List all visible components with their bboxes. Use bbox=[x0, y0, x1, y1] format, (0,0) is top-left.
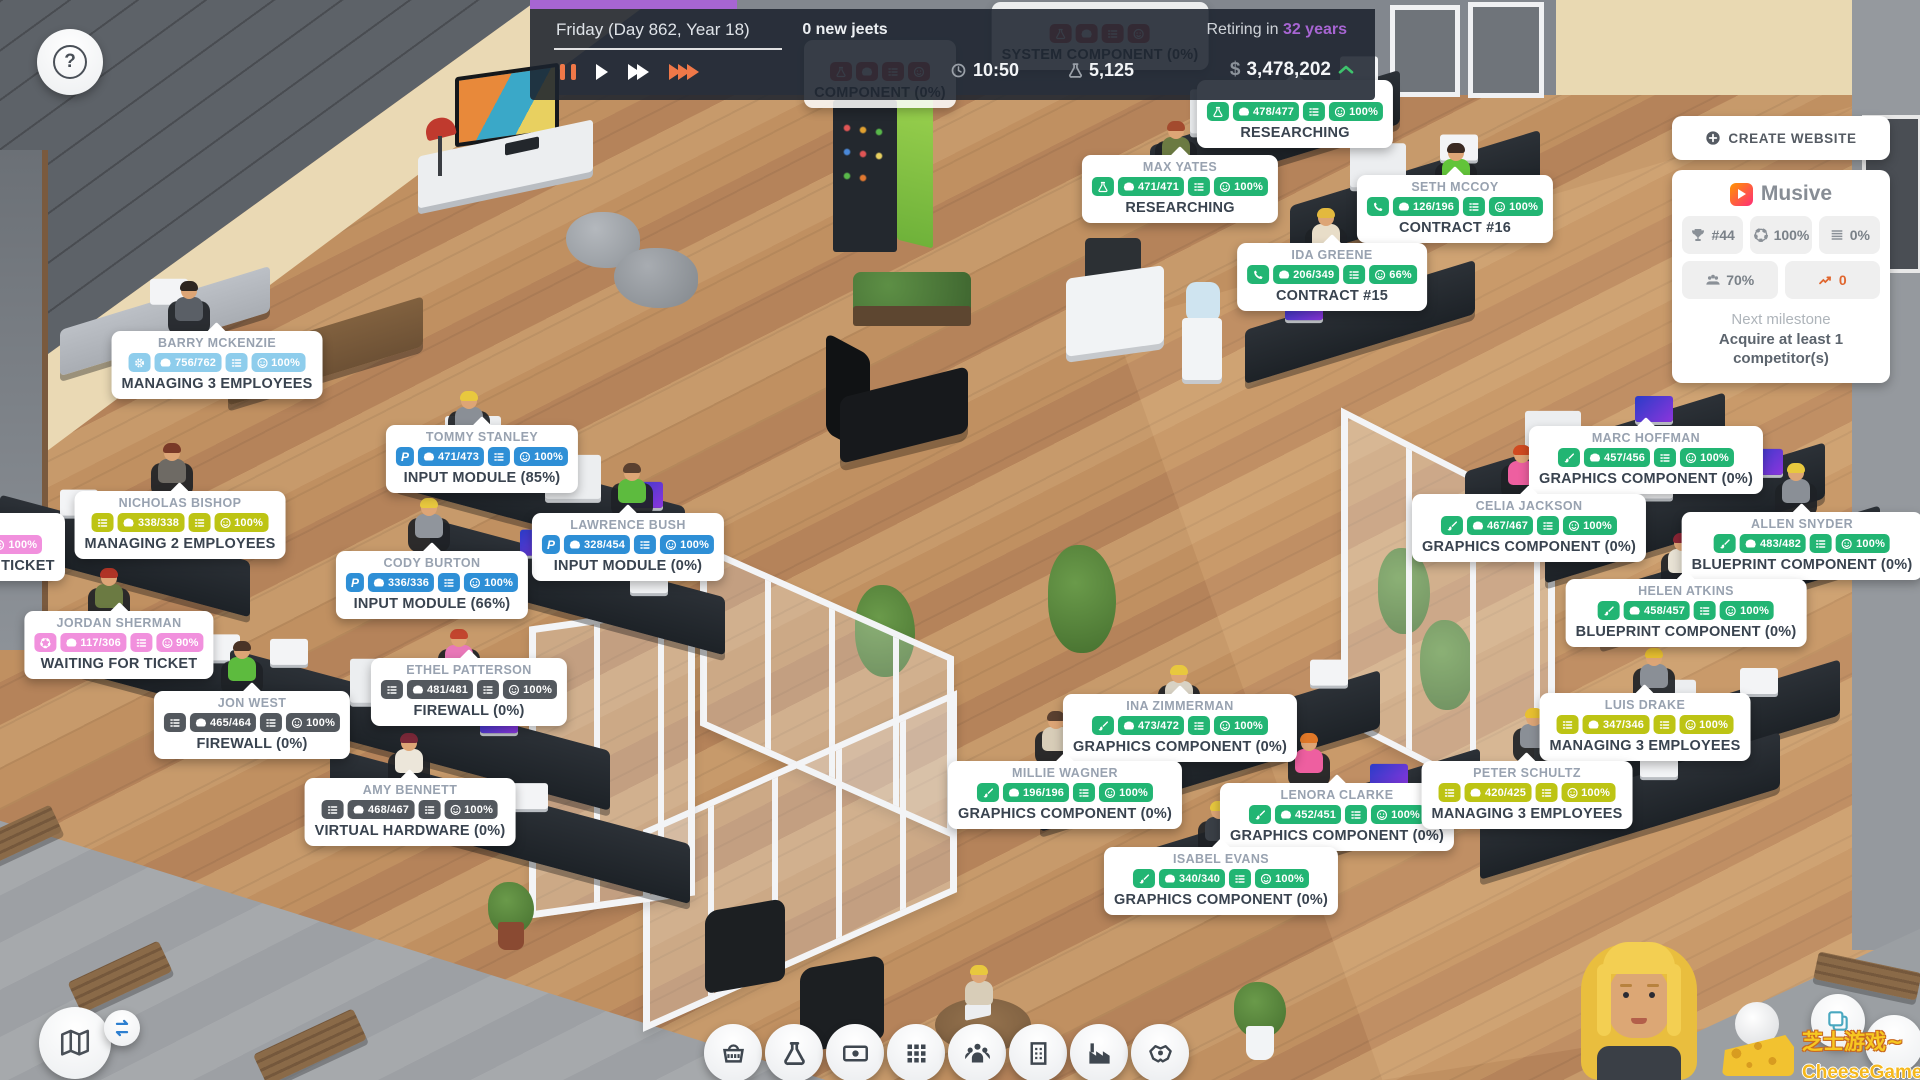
role-badge bbox=[1367, 197, 1389, 216]
water-cooler[interactable] bbox=[1182, 318, 1222, 380]
play-button[interactable] bbox=[596, 64, 608, 80]
speed-badge: 465/464 bbox=[190, 713, 256, 732]
employee-label[interactable]: LAWRENCE BUSH P 328/454 100% INPUT MODUL… bbox=[532, 513, 724, 581]
trend-icon bbox=[1818, 272, 1834, 288]
queue-badge bbox=[418, 800, 440, 819]
employee-label[interactable]: LUIS DRAKE 347/346 100% MANAGING 3 EMPLO… bbox=[1540, 693, 1751, 761]
employee-task: GRAPHICS COMPONENT (0%) bbox=[1230, 828, 1444, 844]
portrait-fringe bbox=[1603, 942, 1675, 974]
portrait-eye bbox=[1649, 992, 1655, 998]
employee-badges: 117/306 90% bbox=[34, 633, 203, 652]
employee-badges: 347/346 100% bbox=[1550, 715, 1741, 734]
queue-badge bbox=[1188, 177, 1210, 196]
create-website-label: CREATE WEBSITE bbox=[1728, 131, 1856, 146]
grid-icon bbox=[903, 1040, 930, 1067]
role-badge bbox=[1249, 805, 1271, 824]
employee-task: GRAPHICS COMPONENT (0%) bbox=[1073, 739, 1287, 755]
mood-badge: 66% bbox=[1369, 265, 1417, 284]
mood-badge: 100% bbox=[444, 800, 498, 819]
employee-badges: 452/451 100% bbox=[1230, 805, 1444, 824]
portrait-strand bbox=[1667, 964, 1681, 1036]
coffee-cabinet bbox=[1066, 265, 1164, 357]
employee-name: BARRY MCKENZIE bbox=[122, 336, 313, 350]
employee-task: WAITING FOR TICKET bbox=[34, 656, 203, 672]
site-stat-users[interactable]: 70% bbox=[1682, 261, 1778, 299]
employee-label[interactable]: ETHEL PATTERSON 481/481 100% FIREWALL (0… bbox=[371, 658, 567, 726]
retiring-value: 32 years bbox=[1283, 21, 1347, 38]
currency-symbol: $ bbox=[1230, 59, 1241, 81]
employee-badges: 465/464 100% bbox=[164, 713, 340, 732]
employee-badges: 473/472 100% bbox=[1073, 716, 1287, 735]
retiring-prefix: Retiring in bbox=[1206, 21, 1278, 38]
advisor-portrait[interactable] bbox=[1563, 938, 1715, 1080]
mood-badge: 100% bbox=[1099, 783, 1153, 802]
role-badge: P bbox=[542, 535, 560, 554]
users-icon bbox=[1705, 272, 1721, 288]
balance-up-icon bbox=[1337, 61, 1355, 79]
queue-badge bbox=[1537, 516, 1559, 535]
employee-badges: 471/471 100% bbox=[1092, 177, 1268, 196]
basket-icon bbox=[720, 1040, 747, 1067]
team-button[interactable] bbox=[948, 1024, 1006, 1080]
speed-controls bbox=[560, 61, 699, 83]
employee-task: MANAGING 3 EMPLOYEES bbox=[122, 376, 313, 392]
map-icon bbox=[58, 1026, 92, 1060]
employee-label[interactable]: ISABEL EVANS 340/340 100% GRAPHICS COMPO… bbox=[1104, 847, 1338, 915]
queue-badge bbox=[1654, 448, 1676, 467]
speed-badge: 206/349 bbox=[1273, 265, 1339, 284]
fast-forward-button[interactable] bbox=[628, 64, 649, 80]
balance[interactable]: $ 3,478,202 bbox=[1230, 59, 1355, 81]
employee-name: JORDAN SHERMAN bbox=[34, 616, 203, 630]
retirement-status: Retiring in 32 years bbox=[1206, 21, 1347, 39]
employee-label[interactable]: JORDAN SHERMAN 117/306 90% WAITING FOR T… bbox=[24, 611, 213, 679]
employee-badges: P 471/473 100% bbox=[396, 447, 568, 466]
production-button[interactable] bbox=[1070, 1024, 1128, 1080]
employee-task: FIREWALL (0%) bbox=[381, 703, 557, 719]
employee-name: CELIA JACKSON bbox=[1422, 499, 1636, 513]
role-badge bbox=[1558, 448, 1580, 467]
plant bbox=[1048, 545, 1116, 653]
speed-badge: 478/477 bbox=[1233, 102, 1299, 121]
mood-badge: 100% bbox=[1563, 516, 1617, 535]
role-badge bbox=[1092, 716, 1114, 735]
employee-label[interactable]: CODY BURTON P 336/336 100% INPUT MODULE … bbox=[336, 551, 528, 619]
queue-badge bbox=[488, 447, 510, 466]
pause-button[interactable] bbox=[560, 64, 576, 80]
lounge-chair[interactable] bbox=[705, 898, 785, 994]
speed-badge: 126/196 bbox=[1393, 197, 1459, 216]
mood-badge: 100% bbox=[1371, 805, 1425, 824]
employee-badges: 420/425 100% bbox=[1432, 783, 1623, 802]
employee-name: IDA GREENE bbox=[1247, 248, 1417, 262]
speed-badge: 452/451 bbox=[1275, 805, 1341, 824]
website-card: Musive #44100%0%70%0 Next milestone Acqu… bbox=[1672, 170, 1890, 383]
employee-badges: P 328/454 100% bbox=[542, 535, 714, 554]
employee-name bbox=[0, 518, 55, 532]
queue-badge bbox=[130, 633, 152, 652]
employee-task: RESEARCHING bbox=[1207, 125, 1383, 141]
employee-label[interactable]: ALLEN SNYDER 483/482 100% BLUEPRINT COMP… bbox=[1682, 512, 1920, 580]
employee-task: GRAPHICS COMPONENT (0%) bbox=[1422, 539, 1636, 555]
plant-pot bbox=[498, 922, 524, 950]
queue-badge bbox=[1345, 805, 1367, 824]
employee-task: INPUT MODULE (0%) bbox=[542, 558, 714, 574]
time-value: 10:50 bbox=[973, 60, 1019, 81]
employee-task: INPUT MODULE (66%) bbox=[346, 596, 518, 612]
features-button[interactable] bbox=[887, 1024, 945, 1080]
lamp-pole bbox=[438, 136, 442, 176]
employee-label[interactable]: SETH MCCOY 126/196 100% CONTRACT #16 bbox=[1357, 175, 1553, 243]
speed-badge: 458/457 bbox=[1624, 601, 1690, 620]
employee-task: MANAGING 3 EMPLOYEES bbox=[1432, 806, 1623, 822]
employee-label[interactable]: TOMMY STANLEY P 471/473 100% INPUT MODUL… bbox=[386, 425, 578, 493]
team-icon bbox=[964, 1040, 991, 1067]
role-badge bbox=[1714, 534, 1736, 553]
mood-badge: 100% bbox=[1255, 869, 1309, 888]
speed-badge: 471/473 bbox=[418, 447, 484, 466]
employee-task: WAITING FOR TICKET bbox=[0, 558, 55, 574]
speed-badge: 117/306 bbox=[60, 633, 126, 652]
mood-badge: 100% bbox=[1836, 534, 1890, 553]
fastest-button[interactable] bbox=[669, 64, 699, 80]
website-header[interactable]: Musive bbox=[1682, 182, 1880, 206]
shop-button[interactable] bbox=[704, 1024, 762, 1080]
employee-task: GRAPHICS COMPONENT (0%) bbox=[1114, 892, 1328, 908]
water-cooler-bottle bbox=[1186, 282, 1220, 322]
role-badge bbox=[1439, 783, 1461, 802]
employee-badges: 467/467 100% bbox=[1422, 516, 1636, 535]
employee-badges: 483/482 100% bbox=[1692, 534, 1913, 553]
role-badge bbox=[322, 800, 344, 819]
mood-badge: 90% bbox=[156, 633, 204, 652]
employee-badges: 478/477 100% bbox=[1207, 102, 1383, 121]
research-points: 5,125 bbox=[1067, 60, 1134, 81]
speed-badge: 420/425 bbox=[1465, 783, 1531, 802]
mood-badge: 100% bbox=[660, 535, 714, 554]
milestone-label: Next milestone bbox=[1682, 311, 1880, 328]
queue-badge bbox=[225, 353, 247, 372]
window-frame bbox=[1468, 2, 1544, 98]
employee-label[interactable]: JON WEST 465/464 100% FIREWALL (0%) bbox=[154, 691, 350, 759]
employee-label[interactable]: AMY BENNETT 468/467 100% VIRTUAL HARDWAR… bbox=[305, 778, 516, 846]
speed-badge: 473/472 bbox=[1118, 716, 1184, 735]
speed-badge: 457/456 bbox=[1584, 448, 1650, 467]
employee-label[interactable]: 100% WAITING FOR TICKET bbox=[0, 513, 65, 581]
contracts-button[interactable] bbox=[1131, 1024, 1189, 1080]
portrait-brow bbox=[1647, 984, 1659, 987]
speed-badge: 756/762 bbox=[155, 353, 221, 372]
employee-name: LENORA CLARKE bbox=[1230, 788, 1444, 802]
employee-task: MANAGING 3 EMPLOYEES bbox=[1550, 738, 1741, 754]
watermark-cn: 芝士游戏~ bbox=[1802, 1026, 1920, 1056]
employee-badges: 457/456 100% bbox=[1539, 448, 1753, 467]
employee-name: AMY BENNETT bbox=[315, 783, 506, 797]
musive-logo-icon bbox=[1730, 183, 1753, 206]
employee-name: SETH MCCOY bbox=[1367, 180, 1543, 194]
portrait-eye bbox=[1623, 992, 1629, 998]
employee-name: INA ZIMMERMAN bbox=[1073, 699, 1287, 713]
site-stat-stack[interactable]: 0% bbox=[1819, 216, 1880, 254]
employee-name: TOMMY STANLEY bbox=[396, 430, 568, 444]
employee-badges: 340/340 100% bbox=[1114, 869, 1328, 888]
employee-name: JON WEST bbox=[164, 696, 340, 710]
mood-badge: 100% bbox=[1561, 783, 1615, 802]
research-button[interactable] bbox=[765, 1024, 823, 1080]
mood-badge: 100% bbox=[464, 573, 518, 592]
flask-icon bbox=[1067, 62, 1084, 79]
employee-name: ISABEL EVANS bbox=[1114, 852, 1328, 866]
employee-badges: P 336/336 100% bbox=[346, 573, 518, 592]
stack-icon bbox=[1829, 227, 1845, 243]
employee-task: INPUT MODULE (85%) bbox=[396, 470, 568, 486]
role-badge bbox=[1441, 516, 1463, 535]
game-time: 10:50 bbox=[950, 60, 1019, 81]
employee-task: CONTRACT #15 bbox=[1247, 288, 1417, 304]
employee-task: FIREWALL (0%) bbox=[164, 736, 340, 752]
queue-badge bbox=[1188, 716, 1210, 735]
watermark-site: CheeseGame.org bbox=[1802, 1062, 1920, 1080]
employee-name: MAX YATES bbox=[1092, 160, 1268, 174]
employee-task: VIRTUAL HARDWARE (0%) bbox=[315, 823, 506, 839]
employee-badges: 756/762 100% bbox=[122, 353, 313, 372]
employee-name: NICHOLAS BISHOP bbox=[85, 496, 276, 510]
employee-task: MANAGING 2 EMPLOYEES bbox=[85, 536, 276, 552]
role-badge bbox=[1133, 869, 1155, 888]
speed-badge: 467/467 bbox=[1467, 516, 1533, 535]
employee-badges: 100% bbox=[0, 535, 55, 554]
map-button[interactable] bbox=[39, 1007, 111, 1079]
mood-badge: 100% bbox=[0, 535, 42, 554]
employee-task: RESEARCHING bbox=[1092, 200, 1268, 216]
question-icon: ? bbox=[53, 45, 87, 79]
role-badge bbox=[129, 353, 151, 372]
employee-label[interactable]: LENORA CLARKE 452/451 100% GRAPHICS COMP… bbox=[1220, 783, 1454, 851]
vending-machine-side bbox=[897, 88, 933, 249]
site-stat-trophy[interactable]: #44 bbox=[1682, 216, 1743, 254]
flask-icon bbox=[781, 1040, 808, 1067]
employee-label[interactable]: MILLIE WAGNER 196/196 100% GRAPHICS COMP… bbox=[948, 761, 1182, 829]
role-badge bbox=[381, 680, 403, 699]
website-name: Musive bbox=[1761, 182, 1832, 206]
role-badge bbox=[1247, 265, 1269, 284]
portrait-shoulders bbox=[1597, 1046, 1681, 1080]
mood-badge: 100% bbox=[1680, 448, 1734, 467]
role-badge bbox=[977, 783, 999, 802]
role-badge bbox=[1207, 102, 1229, 121]
employee-label[interactable]: CELIA JACKSON 467/467 100% GRAPHICS COMP… bbox=[1412, 494, 1646, 562]
employee-name: ETHEL PATTERSON bbox=[381, 663, 557, 677]
employee-name: LAWRENCE BUSH bbox=[542, 518, 714, 532]
queue-badge bbox=[1810, 534, 1832, 553]
queue-badge bbox=[1653, 715, 1675, 734]
queue-badge bbox=[477, 680, 499, 699]
day-progress-bar bbox=[530, 0, 737, 9]
queue-badge bbox=[1694, 601, 1716, 620]
website-stats: #44100%0%70%0 bbox=[1682, 216, 1880, 299]
game-screen: 478/477 100% RESEARCHING MAX YATES 471/4… bbox=[0, 0, 1920, 1080]
speed-badge: 483/482 bbox=[1740, 534, 1806, 553]
switch-floor-button[interactable] bbox=[104, 1010, 140, 1046]
mood-badge: 100% bbox=[1214, 716, 1268, 735]
mood-badge: 100% bbox=[1679, 715, 1733, 734]
life-icon bbox=[1753, 227, 1769, 243]
site-stat-life[interactable]: 100% bbox=[1750, 216, 1811, 254]
trophy-icon bbox=[1690, 227, 1706, 243]
role-badge bbox=[1557, 715, 1579, 734]
employee-label[interactable]: IDA GREENE 206/349 66% CONTRACT #15 bbox=[1237, 243, 1427, 311]
employee-badges: 338/338 100% bbox=[85, 513, 276, 532]
cheese-logo-icon bbox=[1722, 1026, 1794, 1076]
employee-task: BLUEPRINT COMPONENT (0%) bbox=[1576, 624, 1797, 640]
employee-label[interactable]: MARC HOFFMAN 457/456 100% GRAPHICS COMPO… bbox=[1529, 426, 1763, 494]
role-badge bbox=[164, 713, 186, 732]
role-badge bbox=[92, 513, 114, 532]
create-website-button[interactable]: CREATE WEBSITE bbox=[1672, 116, 1890, 160]
clock-icon bbox=[950, 62, 967, 79]
employee-name: HELEN ATKINS bbox=[1576, 584, 1797, 598]
speed-badge: 336/336 bbox=[368, 573, 434, 592]
employee-label[interactable]: MAX YATES 471/471 100% RESEARCHING bbox=[1082, 155, 1278, 223]
factory-icon bbox=[1086, 1040, 1113, 1067]
site-stat-trend[interactable]: 0 bbox=[1785, 261, 1881, 299]
role-badge: P bbox=[396, 447, 414, 466]
help-button[interactable]: ? bbox=[37, 29, 103, 95]
employee-label[interactable]: PETER SCHULTZ 420/425 100% MANAGING 3 EM… bbox=[1422, 761, 1633, 829]
mood-badge: 100% bbox=[503, 680, 557, 699]
window-frame bbox=[1390, 5, 1460, 97]
speed-badge: 338/338 bbox=[118, 513, 184, 532]
employee-badges: 126/196 100% bbox=[1367, 197, 1543, 216]
employee-badges: 481/481 100% bbox=[381, 680, 557, 699]
portrait-face bbox=[1609, 964, 1669, 1038]
date-underline bbox=[554, 48, 782, 50]
employee-task: GRAPHICS COMPONENT (0%) bbox=[1539, 471, 1753, 487]
employee-badges: 468/467 100% bbox=[315, 800, 506, 819]
speed-badge: 196/196 bbox=[1003, 783, 1069, 802]
mood-badge: 100% bbox=[1720, 601, 1774, 620]
mood-badge: 100% bbox=[251, 353, 305, 372]
balance-value: 3,478,202 bbox=[1246, 59, 1331, 81]
queue-badge bbox=[1229, 869, 1251, 888]
hedge-planter bbox=[853, 306, 971, 326]
milestone-text: Acquire at least 1 competitor(s) bbox=[1682, 331, 1880, 369]
new-jeets-button[interactable]: 0 new jeets bbox=[770, 21, 920, 39]
employee-label[interactable]: BARRY MCKENZIE 756/762 100% MANAGING 3 E… bbox=[112, 331, 323, 399]
role-badge bbox=[34, 633, 56, 652]
money-icon bbox=[842, 1040, 869, 1067]
employee-name: MARC HOFFMAN bbox=[1539, 431, 1753, 445]
employee-name: LUIS DRAKE bbox=[1550, 698, 1741, 712]
queue-badge bbox=[1303, 102, 1325, 121]
finances-button[interactable] bbox=[826, 1024, 884, 1080]
employee-badges: 206/349 66% bbox=[1247, 265, 1417, 284]
speed-badge: 340/340 bbox=[1159, 869, 1225, 888]
employee-task: CONTRACT #16 bbox=[1367, 220, 1543, 236]
speed-badge: 328/454 bbox=[564, 535, 630, 554]
building-icon bbox=[1025, 1040, 1052, 1067]
employee-label[interactable]: HELEN ATKINS 458/457 100% BLUEPRINT COMP… bbox=[1566, 579, 1807, 647]
employee-badges: 196/196 100% bbox=[958, 783, 1172, 802]
queue-badge bbox=[260, 713, 282, 732]
speed-badge: 481/481 bbox=[407, 680, 473, 699]
employee-task: GRAPHICS COMPONENT (0%) bbox=[958, 806, 1172, 822]
bean-bag[interactable] bbox=[614, 248, 698, 308]
mood-badge: 100% bbox=[514, 447, 568, 466]
speed-badge: 347/346 bbox=[1583, 715, 1649, 734]
plant-pot bbox=[1246, 1026, 1274, 1060]
queue-badge bbox=[1463, 197, 1485, 216]
queue-badge bbox=[634, 535, 656, 554]
employee-name: ALLEN SNYDER bbox=[1692, 517, 1913, 531]
employee-task: BLUEPRINT COMPONENT (0%) bbox=[1692, 557, 1913, 573]
swap-icon bbox=[111, 1017, 133, 1039]
role-badge bbox=[1598, 601, 1620, 620]
queue-badge bbox=[438, 573, 460, 592]
watermark: 芝士游戏~ CheeseGame.org bbox=[1722, 1026, 1920, 1080]
portrait-brow bbox=[1620, 984, 1632, 987]
role-badge: P bbox=[346, 573, 364, 592]
mood-badge: 100% bbox=[1329, 102, 1383, 121]
queue-badge bbox=[188, 513, 210, 532]
queue-badge bbox=[1535, 783, 1557, 802]
mood-badge: 100% bbox=[286, 713, 340, 732]
building-button[interactable] bbox=[1009, 1024, 1067, 1080]
employee-badges: 458/457 100% bbox=[1576, 601, 1797, 620]
employee-label[interactable]: NICHOLAS BISHOP 338/338 100% MANAGING 2 … bbox=[75, 491, 286, 559]
mood-badge: 100% bbox=[1489, 197, 1543, 216]
research-value: 5,125 bbox=[1089, 60, 1134, 81]
plus-circle-icon bbox=[1705, 130, 1721, 146]
hand-icon bbox=[1147, 1040, 1174, 1067]
employee-name: PETER SCHULTZ bbox=[1432, 766, 1623, 780]
speed-badge: 468/467 bbox=[348, 800, 414, 819]
employee-label[interactable]: INA ZIMMERMAN 473/472 100% GRAPHICS COMP… bbox=[1063, 694, 1297, 762]
speed-badge: 471/471 bbox=[1118, 177, 1184, 196]
role-badge bbox=[1092, 177, 1114, 196]
portrait-mouth bbox=[1631, 1018, 1647, 1024]
portrait-strand bbox=[1597, 964, 1611, 1036]
queue-badge bbox=[1343, 265, 1365, 284]
employee-name: CODY BURTON bbox=[346, 556, 518, 570]
vending-machine[interactable] bbox=[833, 100, 897, 252]
queue-badge bbox=[1073, 783, 1095, 802]
game-date: Friday (Day 862, Year 18) bbox=[556, 20, 750, 40]
top-bar: Friday (Day 862, Year 18) 0 new jeets Re… bbox=[530, 9, 1375, 100]
mood-badge: 100% bbox=[1214, 177, 1268, 196]
employee-name: MILLIE WAGNER bbox=[958, 766, 1172, 780]
mood-badge: 100% bbox=[214, 513, 268, 532]
